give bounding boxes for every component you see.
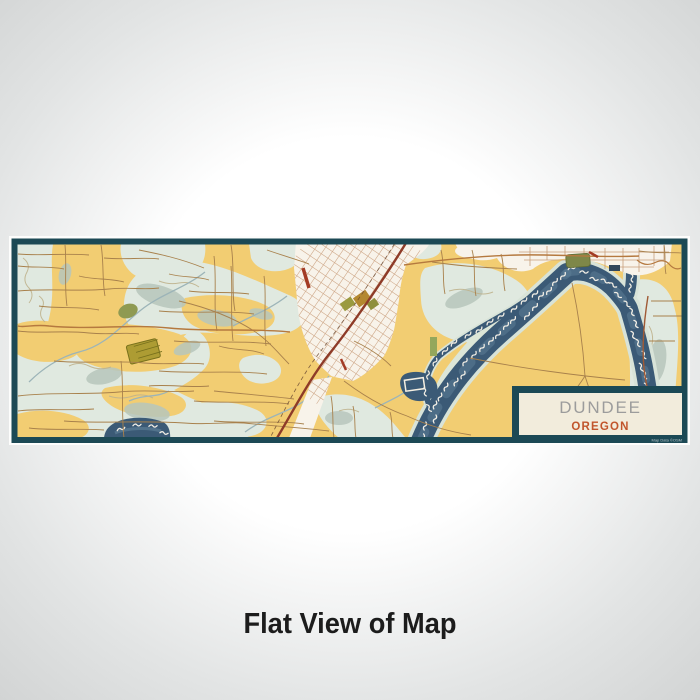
svg-text:Map Data ©OSM: Map Data ©OSM: [651, 438, 682, 443]
svg-text:DUNDEE: DUNDEE: [559, 398, 642, 417]
svg-text:OREGON: OREGON: [571, 421, 629, 433]
